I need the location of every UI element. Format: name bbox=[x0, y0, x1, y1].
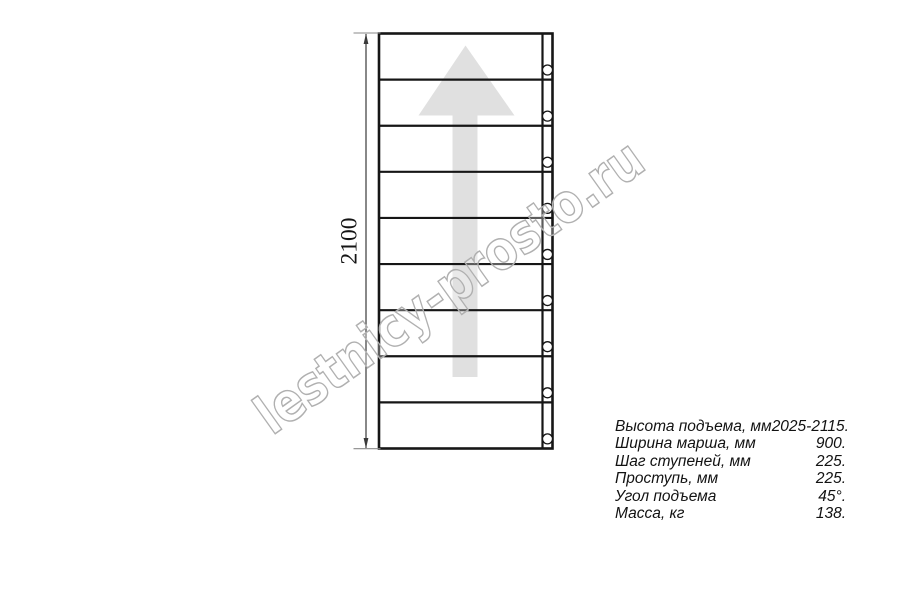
spec-row: Проступь, мм 225. bbox=[615, 470, 846, 487]
spec-label: Масса, кг bbox=[615, 505, 684, 522]
fastener-hole bbox=[543, 388, 553, 398]
dimension-arrow-bottom bbox=[364, 438, 369, 449]
spec-row: Высота подъема, мм 2025-2115. bbox=[615, 418, 846, 435]
fastener-hole bbox=[543, 111, 553, 121]
spec-label: Высота подъема, мм bbox=[615, 418, 772, 435]
spec-value: 225. bbox=[816, 453, 846, 470]
spec-value: 2025-2115. bbox=[772, 418, 849, 435]
spec-label: Проступь, мм bbox=[615, 470, 718, 487]
fastener-hole bbox=[543, 65, 553, 75]
fastener-hole bbox=[543, 157, 553, 167]
spec-table: Высота подъема, мм 2025-2115. Ширина мар… bbox=[615, 418, 846, 522]
spec-row: Шаг ступеней, мм 225. bbox=[615, 453, 846, 470]
dimension-arrow-top bbox=[364, 34, 369, 45]
spec-value: 45°. bbox=[818, 488, 846, 505]
spec-label: Угол подъема bbox=[615, 488, 716, 505]
stair-drawing-page: 2100 lestnicy-prosto.ru Высота подъема, … bbox=[0, 0, 900, 600]
fastener-hole bbox=[543, 342, 553, 352]
spec-value: 225. bbox=[816, 470, 846, 487]
watermark-text: lestnicy-prosto.ru bbox=[243, 127, 656, 447]
spec-row: Ширина марша, мм 900. bbox=[615, 435, 846, 452]
fastener-hole bbox=[543, 296, 553, 306]
spec-label: Ширина марша, мм bbox=[615, 435, 756, 452]
fastener-hole bbox=[543, 434, 553, 444]
spec-row: Масса, кг 138. bbox=[615, 505, 846, 522]
dimension-label: 2100 bbox=[337, 218, 363, 265]
spec-label: Шаг ступеней, мм bbox=[615, 453, 751, 470]
spec-row: Угол подъема 45°. bbox=[615, 488, 846, 505]
spec-value: 900. bbox=[816, 435, 846, 452]
spec-value: 138. bbox=[816, 505, 846, 522]
